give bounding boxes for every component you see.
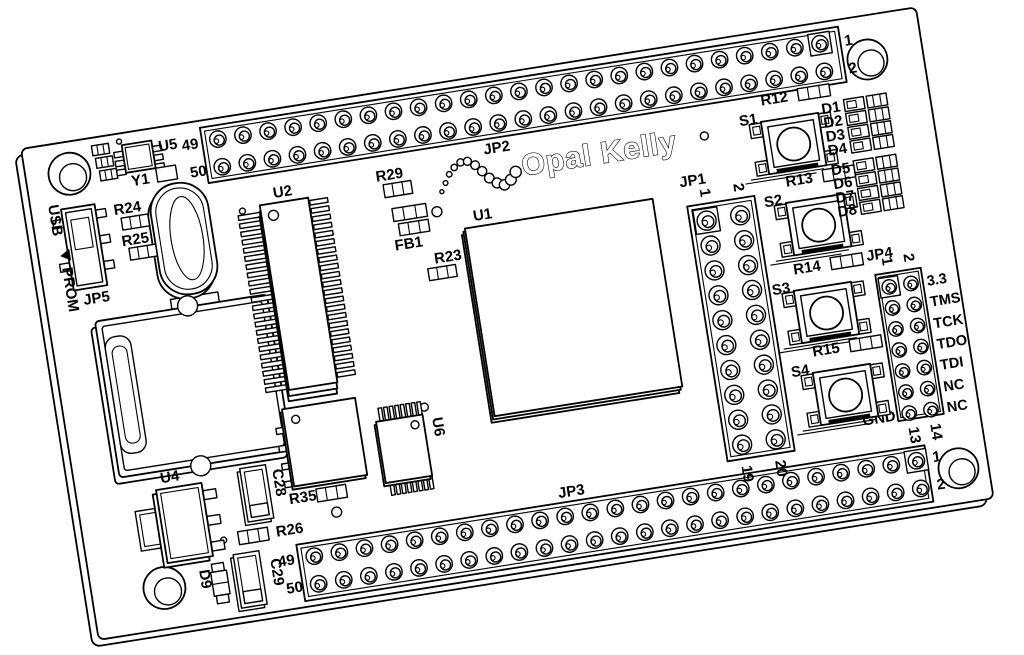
jp3-pin-hole (636, 500, 647, 511)
jp3-pin-hole (440, 559, 451, 570)
jp2-pin-hole (544, 110, 555, 121)
via (700, 131, 709, 140)
y1-label: Y1 (130, 170, 151, 190)
led-resistor (873, 134, 895, 149)
jp2-pin-hole (339, 114, 350, 125)
led-label: D8 (836, 201, 858, 221)
jp4-pin-hole (906, 409, 916, 419)
jp3-pin-hole (565, 539, 576, 550)
jp3-pin-hole (762, 480, 773, 491)
d9-label: D9 (195, 568, 215, 590)
u6-body (376, 414, 432, 483)
led-resistor (868, 107, 890, 122)
pcb-assembly-drawing: U5 Y1 USB PROM JP5 R24 R25 (0, 0, 1024, 655)
jp4-label-14: 14 (926, 422, 946, 442)
jp3-pin-hole (766, 508, 777, 519)
jp3-label-49: 49 (277, 551, 296, 570)
jp2-pin-hole (394, 134, 405, 145)
jp4-pin-hole (917, 343, 927, 353)
ic-u1: U1 (458, 180, 683, 423)
jp4-signal-label: NC (946, 397, 970, 416)
jp2-pin-hole (816, 39, 827, 50)
jp3-pin-hole (465, 555, 476, 566)
jp3-pin-hole (615, 531, 626, 542)
jp2-pin-hole (214, 134, 225, 145)
u5-passive (99, 168, 117, 181)
jp4-pin-hole (889, 304, 899, 314)
jp2-pin-hole (268, 154, 279, 165)
jp4-pin-hole (886, 283, 896, 293)
jp1-label-20: 20 (771, 459, 790, 478)
jp2-pin-hole (795, 71, 806, 82)
u6-label: U6 (428, 416, 448, 438)
jp2-pin-hole (519, 114, 530, 125)
jp2-pin-hole (590, 75, 601, 86)
via (116, 139, 122, 145)
jp1-label-19: 19 (738, 464, 757, 483)
jp2-pin-hole (343, 142, 354, 153)
jp2-pin-hole (619, 98, 630, 109)
jp3-pin-hole (490, 551, 501, 562)
jp3-pin-hole (666, 523, 677, 534)
jp2-pin-hole (540, 83, 551, 94)
jp2-pin-hole (665, 63, 676, 74)
jp2-pin-hole (289, 122, 300, 133)
jp2-pin-hole (669, 90, 680, 101)
jp3-pin-hole (816, 500, 827, 511)
led-resistor (878, 168, 900, 183)
jp2-pin-hole (690, 59, 701, 70)
flash-body (282, 398, 367, 487)
jp3-pin-hole (561, 512, 572, 523)
u6-pin1-dot (410, 420, 419, 429)
jp2-pin-hole (765, 47, 776, 58)
jp2-pin-hole (565, 79, 576, 90)
u5-passive (91, 143, 109, 156)
jp2-pin-hole (740, 51, 751, 62)
jp3-pin-hole (891, 488, 902, 499)
jp3-pin-hole (736, 484, 747, 495)
u1-label: U1 (472, 205, 494, 225)
jp4-pin-hole (896, 346, 906, 356)
logo-wave-dot (440, 189, 445, 194)
jp3-pin-hole (686, 492, 697, 503)
jp3-pin-hole (415, 563, 426, 574)
jp2-pin-hole (464, 95, 475, 106)
jp3-pin-hole (486, 524, 497, 535)
jp3-label-50: 50 (285, 578, 304, 597)
led-resistor (871, 121, 893, 136)
jp2-pin-hole (720, 83, 731, 94)
u4-label: U4 (159, 467, 181, 487)
c28-polarity-band (250, 503, 270, 518)
jp2-pin-hole (489, 91, 500, 102)
jp2-pin-hole (293, 150, 304, 161)
jp2-pin-hole (469, 122, 480, 133)
jp3-pin-hole (314, 579, 325, 590)
via (239, 208, 246, 215)
d9-lead (216, 594, 229, 604)
jp3-pin-hole (536, 516, 547, 527)
jp2-pin-hole (318, 146, 329, 157)
jp3-pin-hole (787, 476, 798, 487)
u2-pin1-dot (268, 210, 279, 221)
jp3-pin-hole (540, 543, 551, 554)
jp2-pin-hole (644, 94, 655, 105)
jp2-pin-hole (715, 55, 726, 66)
c29-polarity-band (243, 589, 263, 604)
jp2-pin-hole (364, 111, 375, 122)
jp3-pin-hole (716, 515, 727, 526)
jp3-pin-hole (385, 539, 396, 550)
jp3-pin-hole (711, 488, 722, 499)
jp3-pin-hole (661, 496, 672, 507)
jp2-pin-hole (444, 126, 455, 137)
jp4-pin-hole (907, 279, 917, 289)
jp3-pin-hole (791, 504, 802, 515)
jp4-signal-label: 3.3 (926, 271, 948, 290)
jp2-pin-hole (243, 158, 254, 169)
jp2-label-50: 50 (189, 162, 208, 181)
jp3-pin-hole (691, 519, 702, 530)
jp3-pin-hole (435, 532, 446, 543)
button-label: S2 (763, 192, 784, 212)
jp2-pin-hole (695, 87, 706, 98)
button-label: S4 (790, 361, 811, 381)
jp2-label-49: 49 (181, 135, 200, 154)
jp2-pin-hole (264, 126, 275, 137)
jp3-pin-hole (515, 547, 526, 558)
jp2-pin-hole (218, 162, 229, 173)
jp3-pin-hole (866, 492, 877, 503)
logo-wave-dot (446, 171, 452, 177)
jp2-pin-hole (414, 103, 425, 114)
jp3-pin-hole (310, 551, 321, 562)
jp3-pin-hole (360, 543, 371, 554)
jp4-pin-hole (899, 367, 909, 377)
logo-wave-dot (451, 164, 458, 171)
u5-passive (95, 156, 113, 169)
led-resistor (882, 196, 904, 211)
jp2-pin-hole (745, 79, 756, 90)
jp2-pin-hole (494, 118, 505, 129)
jp2-pin-hole (594, 102, 605, 113)
jp2-pin-hole (770, 75, 781, 86)
jp4-pin-hole (892, 325, 902, 335)
jp2-pin-hole (569, 106, 580, 117)
led-resistor (876, 154, 898, 169)
jp3-pin-hole (390, 567, 401, 578)
jp4-pin-hole (924, 385, 934, 395)
u2-label: U2 (272, 182, 294, 202)
u5-label: U5 (157, 136, 179, 156)
u4-lead (207, 514, 221, 525)
jp4-pin-hole (921, 364, 931, 374)
jp2-pin-hole (791, 43, 802, 54)
jp4-label-13: 13 (905, 426, 924, 445)
jp2-pin-hole (820, 67, 831, 78)
jp3-pin-hole (837, 468, 848, 479)
flash-pin1-dot (291, 415, 300, 424)
y1-pad (156, 165, 178, 182)
jp3-pin-hole (335, 547, 346, 558)
via (331, 506, 342, 517)
jp2-pin-hole (439, 99, 450, 110)
jp4-pin-hole (902, 388, 912, 398)
jp3-pin-hole (339, 575, 350, 586)
jp3-pin-hole (586, 508, 597, 519)
jp3-pin-hole (862, 464, 873, 475)
jp4-pin-hole (927, 406, 937, 416)
logo-wave-dot (443, 180, 448, 185)
jp3-pin-hole (887, 460, 898, 471)
jp3-pin-hole (460, 528, 471, 539)
jp4-pin-hole (914, 321, 924, 331)
jp3-pin-hole (410, 536, 421, 547)
button-label: S1 (738, 111, 759, 131)
jp3-pin-hole (365, 571, 376, 582)
jp2-pin-hole (368, 138, 379, 149)
led-label: D4 (827, 140, 849, 160)
jp4-signal-label: NC (942, 376, 966, 395)
jp4-pin-hole (911, 300, 921, 310)
jp2-pin-hole (515, 87, 526, 98)
jp3-pin-hole (590, 535, 601, 546)
jp3-pin-hole (511, 520, 522, 531)
jp2-pin-hole (314, 118, 325, 129)
jp2-pin-hole (640, 67, 651, 78)
u1-body (465, 199, 682, 416)
board-group: U5 Y1 USB PROM JP5 R24 R25 (14, 7, 994, 647)
jp2-pin-hole (419, 130, 430, 141)
jp3-pin-hole (640, 527, 651, 538)
jp3-pin-hole (611, 504, 622, 515)
jp3-pin-hole (916, 484, 927, 495)
button-label: S3 (771, 279, 792, 299)
jp3-pin-hole (741, 512, 752, 523)
u4-lead (211, 540, 225, 551)
u4-lead (203, 489, 217, 500)
via (431, 206, 442, 217)
led-resistor (880, 182, 902, 197)
led-resistor (866, 93, 888, 108)
jp2-pin-hole (615, 71, 626, 82)
jp3-pin-hole (912, 456, 923, 467)
jp2-pin-hole (239, 130, 250, 141)
jp3-pin-hole (812, 472, 823, 483)
pcb-drawing-svg: U5 Y1 USB PROM JP5 R24 R25 (0, 0, 1024, 655)
jp3-pin-hole (841, 496, 852, 507)
jp2-pin-hole (389, 107, 400, 118)
